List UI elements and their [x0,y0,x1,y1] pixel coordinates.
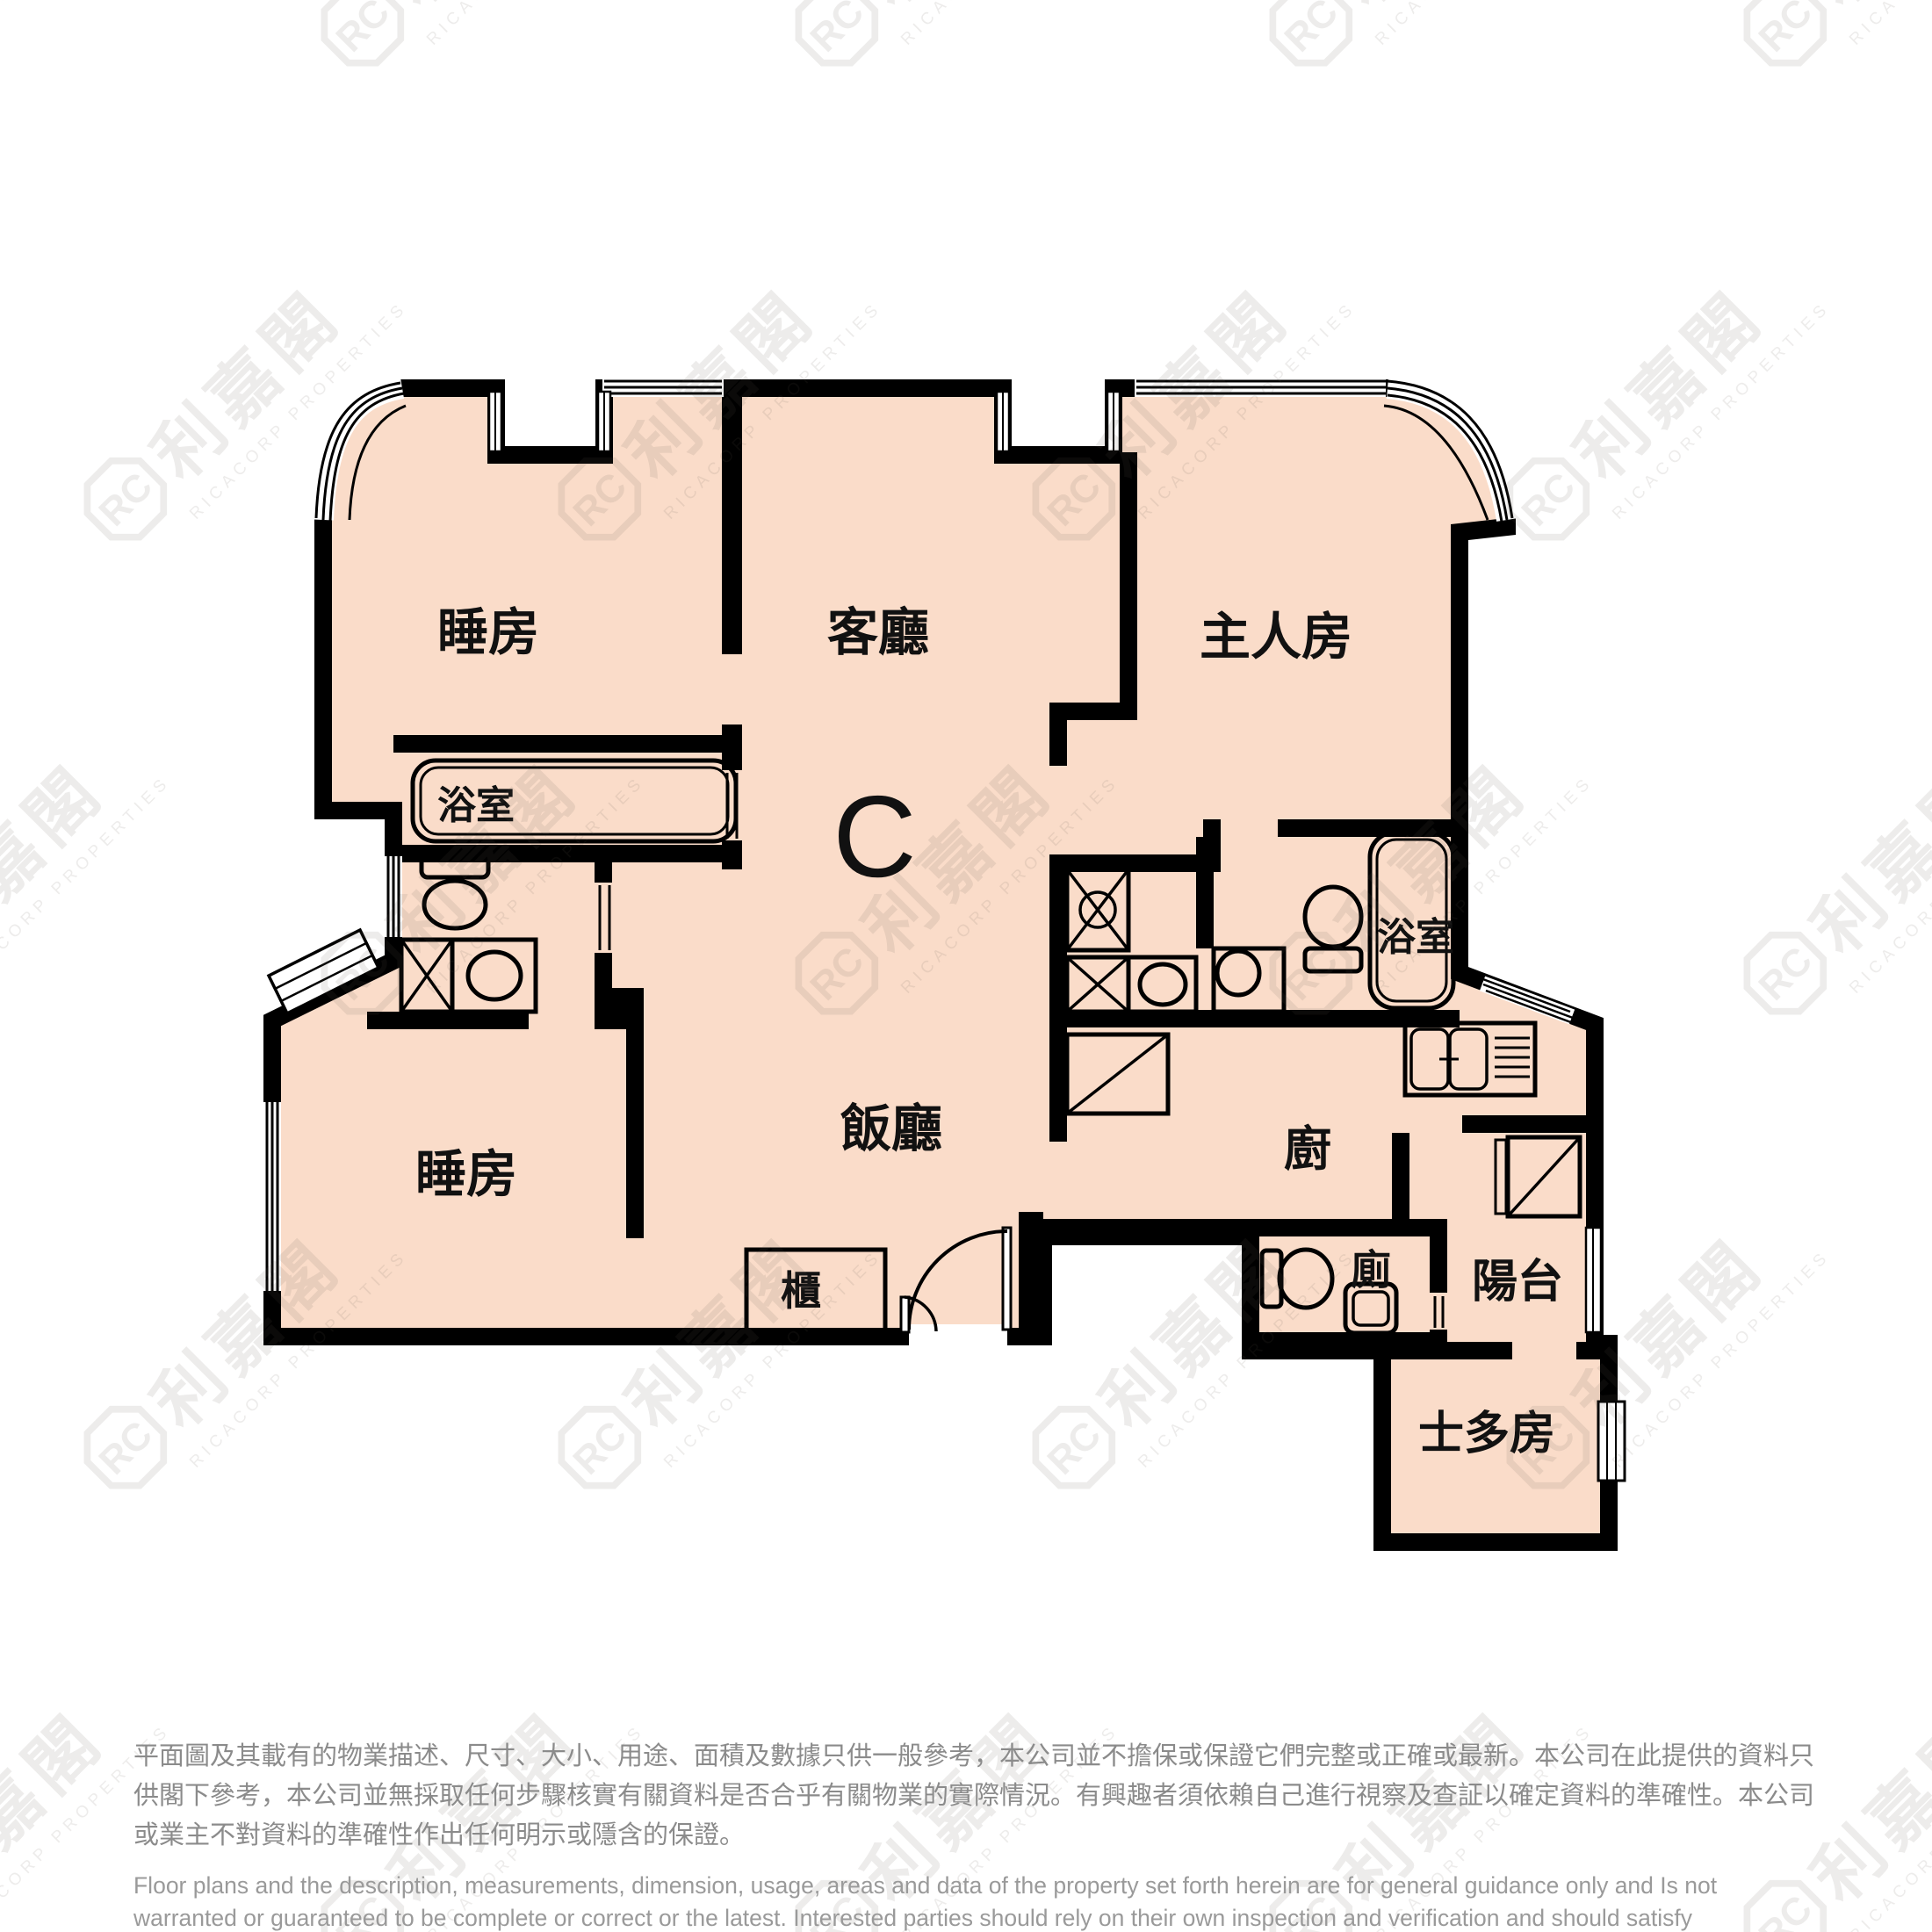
room-label-bathroom-left: 浴室 [437,783,515,827]
top-window-master [1135,378,1386,397]
top-window-bedroom [602,378,724,397]
room-label-balcony: 陽台 [1472,1257,1563,1308]
window-bay-right [997,392,1120,451]
floor-plan: 睡房 客廳 主人房 C 浴室 浴室 睡房 飯廳 廚 櫃 廁 陽台 士多房 [0,0,1932,1932]
room-label-toilet: 廁 [1351,1247,1391,1293]
balcony-window [1586,1228,1601,1332]
disclaimer-chinese: 平面圖及其載有的物業描述、尺寸、大小、用途、面積及數據只供一般參考，本公司並不擔… [133,1737,1815,1856]
disclaimer-english: Floor plans and the description, measure… [133,1870,1815,1932]
room-label-bathroom-right: 浴室 [1377,915,1454,959]
room-label-master: 主人房 [1200,609,1352,666]
unit-label: C [833,772,916,901]
room-label-kitchen: 廚 [1284,1122,1331,1176]
room-label-cabinet: 櫃 [781,1268,821,1314]
room-label-bedroom-top: 睡房 [437,604,539,661]
room-label-living: 客廳 [827,604,929,661]
toilet-nook-window [385,856,402,937]
floor-plan-page: 睡房 客廳 主人房 C 浴室 浴室 睡房 飯廳 廚 櫃 廁 陽台 士多房 RC利… [0,0,1932,1932]
window-bay-left [489,392,610,451]
room-label-store: 士多房 [1418,1409,1555,1460]
store-room-window [1598,1402,1625,1481]
disclaimer: 平面圖及其載有的物業描述、尺寸、大小、用途、面積及數據只供一般參考，本公司並不擔… [133,1737,1815,1932]
room-label-bedroom-bottom: 睡房 [415,1146,517,1203]
bedroom2-left-window [263,1102,281,1291]
room-label-dining: 飯廳 [840,1100,942,1157]
